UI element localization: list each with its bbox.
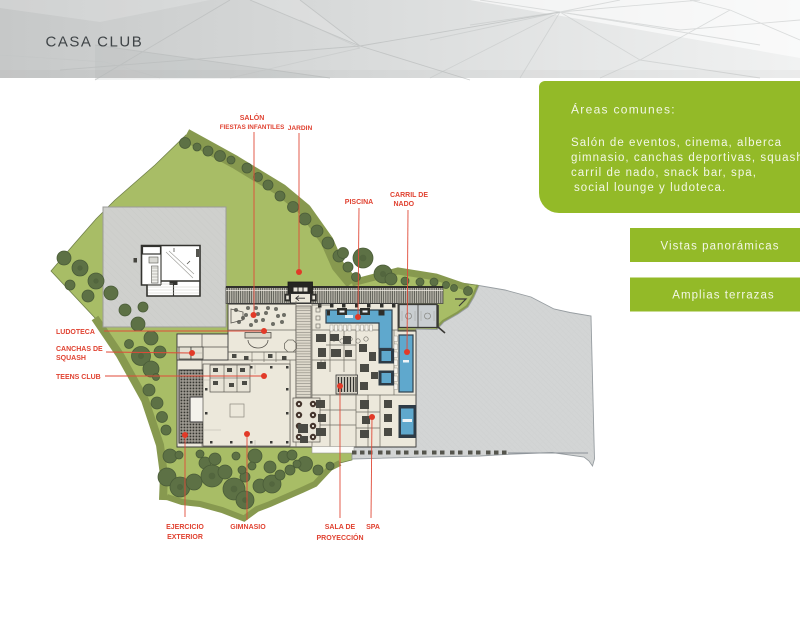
svg-text:EJERCICIO: EJERCICIO — [166, 524, 204, 531]
svg-text:Vistas panorámicas: Vistas panorámicas — [660, 241, 779, 253]
svg-text:gimnasio, canchas deportivas,: gimnasio, canchas deportivas, squash, — [571, 152, 800, 164]
svg-text:LUDOTECA: LUDOTECA — [56, 329, 95, 336]
svg-text:SPA: SPA — [366, 524, 380, 531]
svg-text:social lounge y ludoteca.: social lounge y ludoteca. — [574, 182, 726, 194]
svg-text:TEENS CLUB: TEENS CLUB — [56, 374, 101, 381]
svg-text:PROYECCIÓN: PROYECCIÓN — [316, 533, 363, 542]
svg-text:SALA DE: SALA DE — [325, 524, 356, 531]
svg-text:CARRIL DE: CARRIL DE — [390, 192, 428, 199]
svg-text:Áreas comunes:: Áreas comunes: — [571, 102, 676, 117]
svg-text:Salón de eventos, cinema, albe: Salón de eventos, cinema, alberca — [571, 137, 782, 149]
svg-text:SQUASH: SQUASH — [56, 355, 86, 362]
svg-text:PISCINA: PISCINA — [345, 199, 373, 206]
svg-text:EXTERIOR: EXTERIOR — [167, 534, 203, 541]
svg-text:carril de nado, snack bar, spa: carril de nado, snack bar, spa, — [571, 167, 757, 179]
svg-text:CANCHAS DE: CANCHAS DE — [56, 346, 103, 353]
svg-text:CASA CLUB: CASA CLUB — [46, 34, 144, 51]
svg-text:JARDIN: JARDIN — [288, 125, 313, 132]
svg-text:GIMNASIO: GIMNASIO — [230, 524, 266, 531]
svg-text:NADO: NADO — [394, 201, 415, 208]
svg-text:SALÓN: SALÓN — [240, 113, 265, 122]
svg-text:Amplias terrazas: Amplias terrazas — [672, 290, 774, 302]
svg-text:FIESTAS INFANTILES: FIESTAS INFANTILES — [220, 124, 285, 131]
